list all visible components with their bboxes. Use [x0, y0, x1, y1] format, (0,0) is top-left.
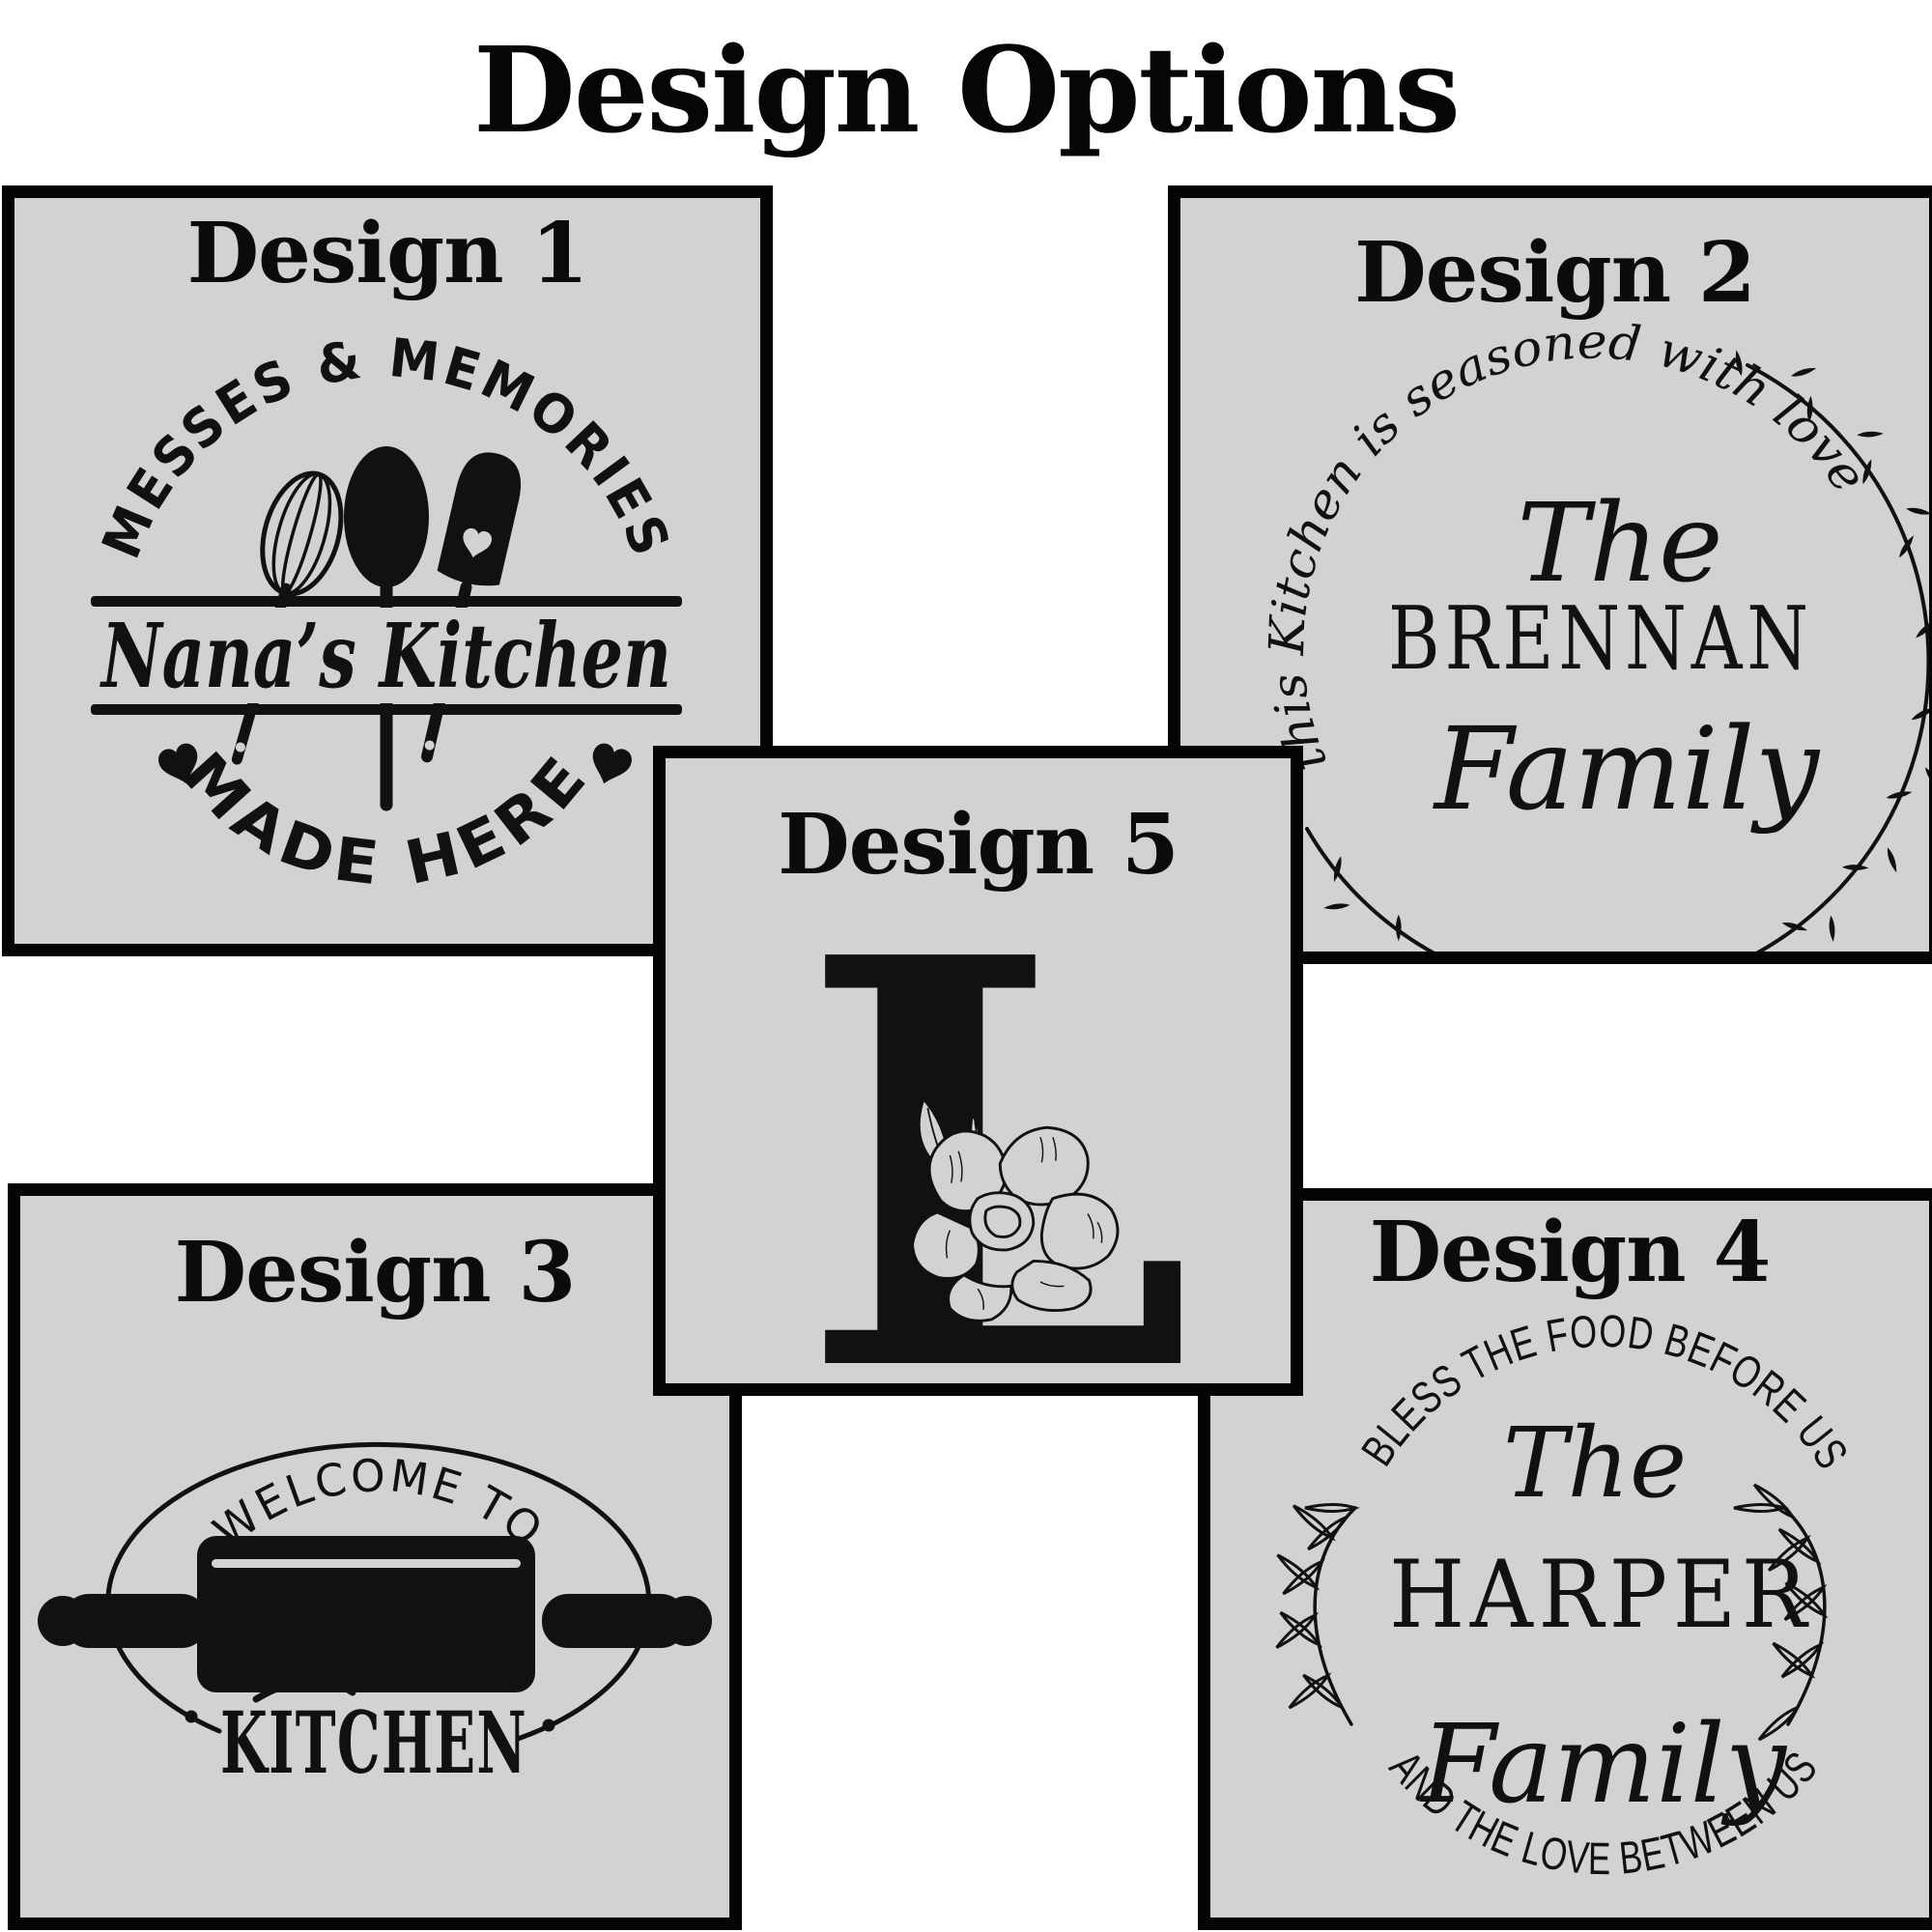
word-family: Family	[1419, 1702, 1788, 1828]
word-the: The	[1503, 1406, 1687, 1520]
vine-leaf	[1857, 431, 1884, 438]
moms-script: Mom’s	[239, 1573, 492, 1682]
panel-title: Design 2	[1180, 225, 1929, 322]
design-5-panel: L Design 5	[653, 746, 1303, 1396]
page-title: Design Options	[0, 17, 1932, 162]
design-3-panel: WELCOME TO Mom’s KITCHEN Design 3	[8, 1183, 742, 1930]
panel-title: Design 1	[14, 206, 760, 302]
kitchen-word: KITCHEN	[220, 1692, 527, 1793]
word-family: Family	[1433, 702, 1821, 836]
vine-leaf	[1829, 915, 1836, 942]
vine-leaf	[1323, 902, 1350, 911]
panel-title: Design 3	[20, 1225, 729, 1321]
family-name-script: Nana’s Kitchen	[99, 604, 671, 708]
vine-leaf	[1885, 846, 1898, 873]
vine-leaf	[1923, 766, 1929, 791]
branch-leaf	[1752, 1482, 1795, 1520]
laurel-branch-icon-left	[1274, 1503, 1355, 1724]
design-4-artwork: BLESS THE FOOD BEFORE US AND THE LOVE BE…	[1210, 1201, 1929, 1918]
branch-leaf	[1305, 1505, 1355, 1512]
vine-leaf	[1396, 915, 1402, 942]
panel-title: Design 5	[666, 797, 1291, 894]
family-surname: HARPER	[1389, 1541, 1812, 1649]
panel-title: Design 4	[1210, 1205, 1929, 1301]
design-1-artwork: Nana’s Kitchen MESSES & MEMORIES MADE HE…	[14, 198, 760, 944]
vine-leaf	[1905, 506, 1929, 517]
family-surname: BRENNAN	[1388, 588, 1813, 690]
vine-leaf	[1790, 365, 1817, 379]
rolling-pin-icon: Mom’s	[38, 1536, 712, 1692]
vine-leaf	[1842, 865, 1869, 870]
design-4-panel: BLESS THE FOOD BEFORE US AND THE LOVE BE…	[1198, 1188, 1932, 1930]
